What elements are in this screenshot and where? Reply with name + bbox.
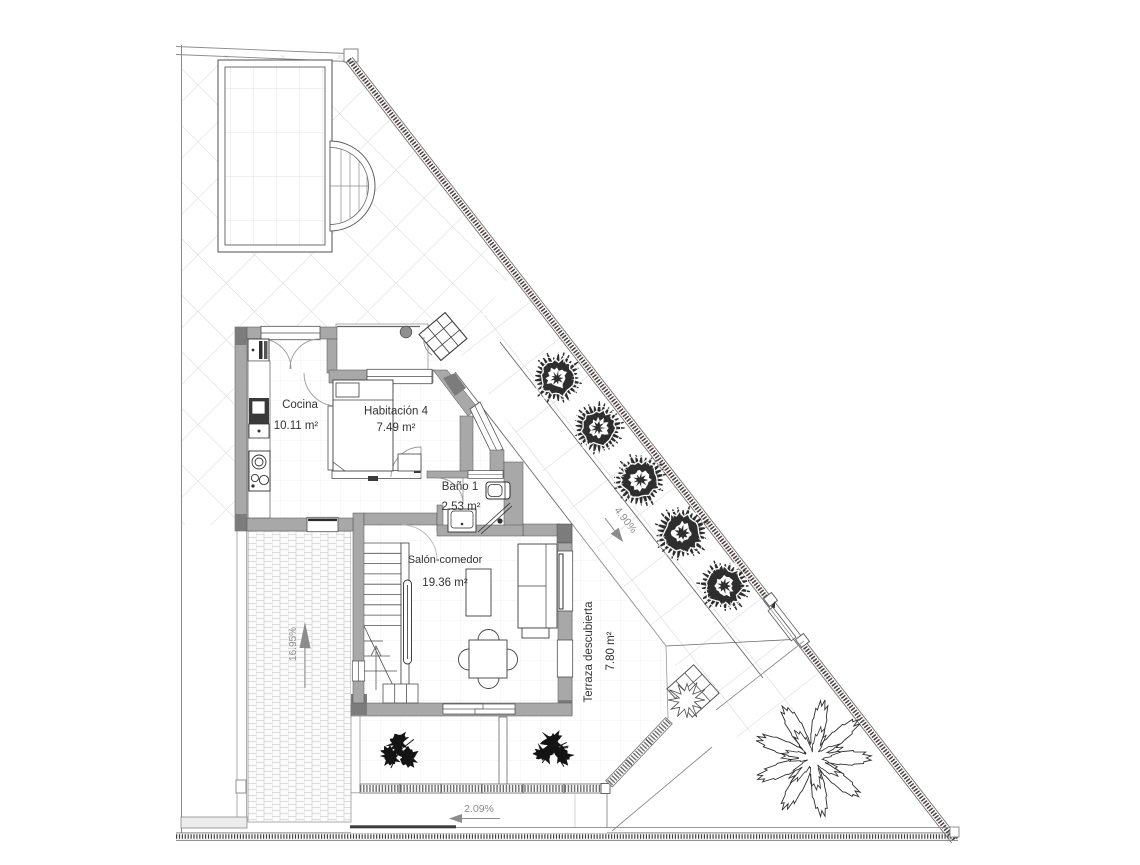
svg-text:Baño 1: Baño 1 (442, 481, 478, 493)
svg-text:2.53 m²: 2.53 m² (442, 501, 481, 513)
svg-text:Cocina: Cocina (282, 399, 318, 411)
svg-text:7.80 m²: 7.80 m² (605, 631, 617, 670)
svg-text:Salón-comedor: Salón-comedor (408, 554, 483, 566)
svg-text:10.11 m²: 10.11 m² (274, 420, 319, 432)
svg-text:7.49 m²: 7.49 m² (377, 422, 416, 434)
svg-text:16.95%: 16.95% (288, 627, 299, 661)
svg-text:2.09%: 2.09% (464, 803, 494, 815)
svg-text:Terraza descubierta: Terraza descubierta (583, 601, 595, 703)
svg-text:Habitación 4: Habitación 4 (364, 406, 429, 418)
svg-text:19.36 m²: 19.36 m² (422, 577, 468, 589)
